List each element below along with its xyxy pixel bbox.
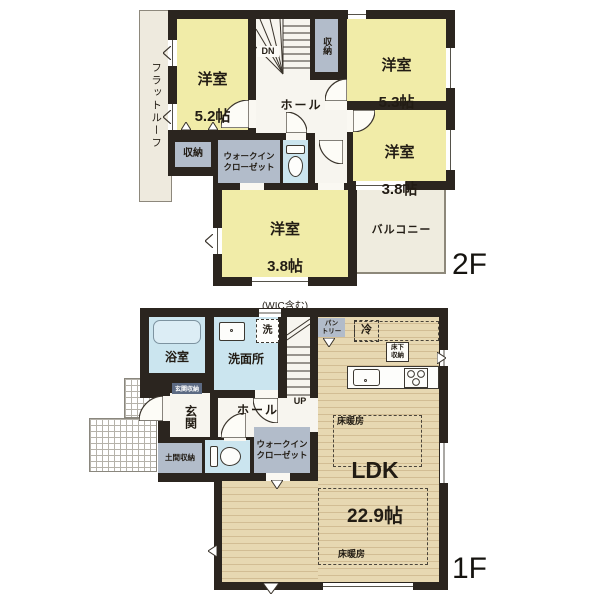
room-label-bedroom-5-2: 洋室 5.2帖 <box>177 52 248 127</box>
hall-2f-label: ホール <box>256 98 347 113</box>
kitchen-sink-icon <box>353 369 380 386</box>
casement-marker <box>163 110 171 124</box>
closet-top: 収納 <box>315 19 338 72</box>
floor-plan: フラットルーフ 収納 収納 ウォークイン クローゼット <box>0 0 600 600</box>
room-size: 3.8帖 <box>267 258 303 275</box>
bathroom-label: 浴室 <box>149 350 205 365</box>
entrance-label-wrap: 玄関 <box>176 398 204 436</box>
floor-label-2f: 2F <box>452 248 487 282</box>
ldk-size: 22.9帖 <box>347 506 403 527</box>
doma-storage: 土間収納 <box>158 443 202 473</box>
sink-drain-dot <box>364 379 367 382</box>
walk-in-closet-2f: ウォークイン クローゼット <box>218 140 280 183</box>
floor-label-1f: 1F <box>452 552 487 586</box>
hall-1f-label: ホール <box>218 403 298 418</box>
casement-marker <box>163 46 171 60</box>
room-size: 5.2帖 <box>195 108 231 125</box>
underfloor-storage: 床下 収納 <box>386 342 409 362</box>
door-arc <box>139 396 163 421</box>
stairs-dn-label: DN <box>257 46 279 57</box>
window <box>323 583 413 590</box>
closet-left-label: 収納 <box>183 148 203 161</box>
toilet-tank-icon <box>210 446 218 467</box>
flat-roof-label: フラットルーフ <box>149 62 162 150</box>
window <box>446 48 455 88</box>
toilet-tank-icon <box>286 145 305 154</box>
room-label-bedroom-3-8-right: 洋室 3.8帖 <box>353 125 446 200</box>
window <box>446 130 455 170</box>
pantry: パン トリー <box>318 318 345 337</box>
closet-left: 収納 <box>175 142 211 167</box>
entrance-approach <box>89 418 157 472</box>
ldk-label: LDK 22.9帖 <box>330 436 420 529</box>
room-name: 洋室 <box>270 221 300 238</box>
walk-in-closet-1f: ウォークイン クローゼット <box>254 427 310 473</box>
vanity-faucet-dot <box>230 329 233 332</box>
vent-marker <box>271 480 283 489</box>
ldk-floor-extension <box>222 481 318 582</box>
ldk-name: LDK <box>351 457 398 483</box>
vent-marker <box>263 583 279 594</box>
pantry-label: パン トリー <box>322 320 342 335</box>
entrance-storage-label: 玄関収納 <box>175 384 199 393</box>
room-size: 5.3帖 <box>379 94 415 111</box>
window <box>213 228 222 254</box>
room-label-bedroom-3-8-center: 洋室 3.8帖 (WIC含む) <box>222 202 348 315</box>
room-label-bedroom-5-3: 洋室 5.3帖 <box>347 38 446 113</box>
door-opening <box>255 390 278 398</box>
doma-storage-label: 土間収納 <box>165 453 195 462</box>
balcony-label: バルコニー <box>357 224 446 238</box>
window <box>348 10 366 19</box>
vent-marker <box>323 338 335 347</box>
underfloor-storage-label: 床下 収納 <box>391 344 404 360</box>
door-opening <box>286 133 306 140</box>
washroom-label: 洗面所 <box>214 352 278 367</box>
room-name: 洋室 <box>197 71 227 88</box>
stairs-up-icon <box>287 317 310 398</box>
floor-heating-upper-label: 床暖房 <box>337 416 364 427</box>
entrance-storage-box: 玄関収納 <box>172 383 202 394</box>
refrigerator-space: 冷 <box>354 320 379 342</box>
door-opening <box>240 183 264 190</box>
door-arc <box>286 112 307 133</box>
entrance-label: 玄関 <box>183 405 198 429</box>
vent-marker <box>437 352 446 364</box>
stove-icon <box>404 368 428 388</box>
closet-top-label: 収納 <box>321 37 332 55</box>
bathtub-icon <box>153 320 201 344</box>
room-name: 洋室 <box>381 57 411 74</box>
floor-heating-lower-label: 床暖房 <box>338 549 365 560</box>
casement-marker <box>205 234 213 248</box>
door-arc <box>319 140 343 164</box>
walk-in-closet-1f-label: ウォークイン クローゼット <box>256 439 307 460</box>
door-opening <box>248 100 256 128</box>
refrigerator-label: 冷 <box>361 324 372 338</box>
room-name: 洋室 <box>384 144 414 161</box>
door-opening <box>162 396 170 421</box>
window <box>440 443 448 483</box>
window <box>259 309 281 317</box>
door-opening <box>318 183 344 190</box>
laundry-label: 洗 <box>256 325 279 338</box>
room-size: 3.8帖 <box>382 181 418 198</box>
vent-marker <box>208 545 217 557</box>
walk-in-closet-2f-label: ウォークイン クローゼット <box>223 151 274 172</box>
